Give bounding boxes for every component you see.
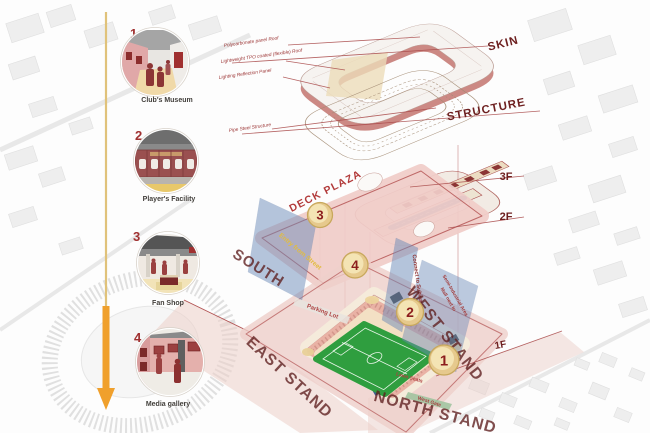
callout-3-label: Fan Shop bbox=[152, 300, 184, 307]
marker-3: 3 bbox=[308, 203, 333, 228]
floor-2-label: 2F bbox=[500, 211, 513, 223]
callout-1-label: Club's Museum bbox=[141, 97, 192, 104]
callout-fan-shop: 3 Fan Shop bbox=[133, 229, 200, 307]
marker-2: 2 bbox=[397, 299, 424, 326]
skin-layer bbox=[288, 17, 506, 138]
arrow-head-icon bbox=[97, 388, 115, 410]
marker-4: 4 bbox=[342, 252, 368, 278]
callout-2-num: 2 bbox=[135, 128, 142, 143]
marker-1: 1 bbox=[429, 345, 459, 375]
roof-note-3: Lighting Reflection Panel bbox=[218, 68, 272, 81]
roof-note-2: Lightweight TPO coated (flexible) Roof bbox=[220, 48, 303, 65]
callout-4-label: Media gallery bbox=[146, 401, 190, 408]
marker-3-num: 3 bbox=[316, 208, 323, 223]
marker-2-num: 2 bbox=[406, 304, 414, 320]
callout-4-num: 4 bbox=[134, 330, 142, 345]
gallery-scene bbox=[137, 329, 203, 395]
callout-players-facility: 2 Player's Facility bbox=[133, 128, 199, 203]
marker-1-num: 1 bbox=[440, 353, 448, 370]
roof-annotations: Polycarbonate panel Roof Lightweight TPO… bbox=[218, 35, 303, 134]
floor-3-label: 3F bbox=[500, 171, 513, 183]
callout-3-num: 3 bbox=[133, 229, 140, 244]
structure-label: STRUCTURE bbox=[446, 97, 527, 124]
stadium-exploded-diagram: DECK PLAZA E bbox=[0, 0, 650, 433]
diagram-canvas: DECK PLAZA E bbox=[0, 0, 650, 433]
callout-2-label: Player's Facility bbox=[143, 196, 196, 203]
roof-note-1: Polycarbonate panel Roof bbox=[223, 35, 279, 49]
skin-label: SKIN bbox=[487, 34, 520, 53]
floor-1-label: 1F bbox=[494, 339, 507, 352]
marker-4-num: 4 bbox=[351, 258, 359, 273]
